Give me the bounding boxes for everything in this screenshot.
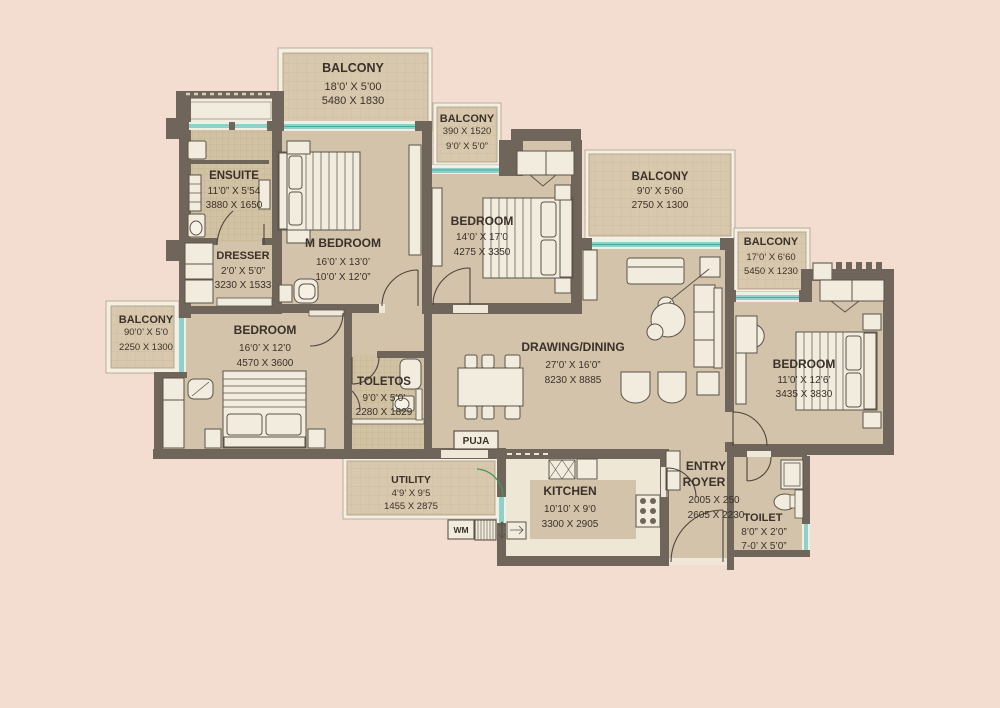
svg-text:KITCHEN: KITCHEN (543, 484, 596, 498)
svg-text:2250 X 1300: 2250 X 1300 (119, 342, 173, 353)
svg-text:2280 X 1829: 2280 X 1829 (356, 407, 413, 418)
svg-text:BEDROOM: BEDROOM (451, 214, 514, 228)
svg-text:9’0’ X 5’0”: 9’0’ X 5’0” (446, 141, 488, 152)
svg-text:8230 X 8885: 8230 X 8885 (545, 375, 602, 386)
svg-text:WM: WM (453, 525, 468, 535)
svg-text:10’10’ X 9‘0: 10’10’ X 9‘0 (544, 504, 596, 515)
svg-text:BEDROOM: BEDROOM (234, 323, 297, 337)
svg-text:9’0’ X 5’0’: 9’0’ X 5’0’ (363, 393, 406, 404)
svg-text:ROYER: ROYER (683, 475, 726, 489)
svg-text:4570 X 3600: 4570 X 3600 (237, 358, 294, 369)
svg-text:M BEDROOM: M BEDROOM (305, 236, 381, 250)
svg-text:5480 X 1830: 5480 X 1830 (322, 95, 384, 107)
svg-text:UTILITY: UTILITY (391, 474, 431, 486)
svg-text:BALCONY: BALCONY (322, 61, 384, 75)
svg-text:ENSUITE: ENSUITE (209, 170, 259, 182)
svg-text:DRESSER: DRESSER (216, 250, 269, 262)
svg-text:27’0’ X 16’0”: 27’0’ X 16’0” (545, 360, 600, 371)
svg-text:17’0’ X 6‘60: 17’0’ X 6‘60 (746, 252, 795, 263)
svg-text:8’0” X 2’0”: 8’0” X 2’0” (741, 527, 787, 538)
svg-text:16’0’ X 13’0’: 16’0’ X 13’0’ (316, 257, 370, 268)
svg-text:3230 X 1533: 3230 X 1533 (215, 280, 272, 291)
svg-text:3300 X 2905: 3300 X 2905 (542, 519, 599, 530)
svg-text:3880 X 1650: 3880 X 1650 (206, 200, 263, 211)
svg-text:18’0’ X 5’00: 18’0’ X 5’00 (324, 81, 381, 93)
svg-text:2’0’ X 5’0”: 2’0’ X 5’0” (221, 266, 265, 277)
svg-text:2605 X 2230: 2605 X 2230 (688, 510, 745, 521)
svg-text:2750 X 1300: 2750 X 1300 (632, 200, 689, 211)
svg-text:DRAWING/DINING: DRAWING/DINING (521, 340, 624, 354)
svg-text:TOILET: TOILET (744, 512, 783, 524)
svg-text:TOLETOS: TOLETOS (357, 376, 411, 388)
svg-text:BALCONY: BALCONY (440, 113, 495, 125)
svg-text:5450 X 1230: 5450 X 1230 (744, 266, 798, 277)
svg-text:BALCONY: BALCONY (119, 314, 174, 326)
svg-text:7-0’ X 5’0”: 7-0’ X 5’0” (741, 541, 786, 552)
svg-text:PUJA: PUJA (463, 436, 490, 447)
svg-text:BEDROOM: BEDROOM (773, 357, 836, 371)
svg-text:14’0’ X 17’0: 14’0’ X 17’0 (456, 232, 508, 243)
svg-text:10’0’ X 12’0”: 10’0’ X 12’0” (315, 272, 370, 283)
svg-text:BALCONY: BALCONY (744, 236, 799, 248)
svg-text:16‘0’ X 12’0: 16‘0’ X 12’0 (239, 343, 291, 354)
svg-text:1455 X 2875: 1455 X 2875 (384, 501, 438, 512)
svg-text:4275 X 3350: 4275 X 3350 (454, 247, 511, 258)
svg-text:ENTRY: ENTRY (686, 459, 726, 473)
svg-text:11’0” X 5‘54: 11’0” X 5‘54 (208, 186, 261, 197)
svg-text:2005 X 250: 2005 X 250 (688, 495, 740, 506)
svg-text:11’0’ X 12’6’: 11’0’ X 12’6’ (777, 375, 830, 386)
svg-text:3435 X 3830: 3435 X 3830 (776, 389, 833, 400)
svg-text:4‘9’ X 9‘5: 4‘9’ X 9‘5 (392, 488, 431, 499)
svg-text:BALCONY: BALCONY (632, 171, 689, 183)
svg-text:90’0’ X 5’0: 90’0’ X 5’0 (124, 327, 168, 338)
svg-text:390 X 1520: 390 X 1520 (443, 126, 492, 137)
svg-text:9’0’ X 5‘60: 9’0’ X 5‘60 (637, 186, 684, 197)
